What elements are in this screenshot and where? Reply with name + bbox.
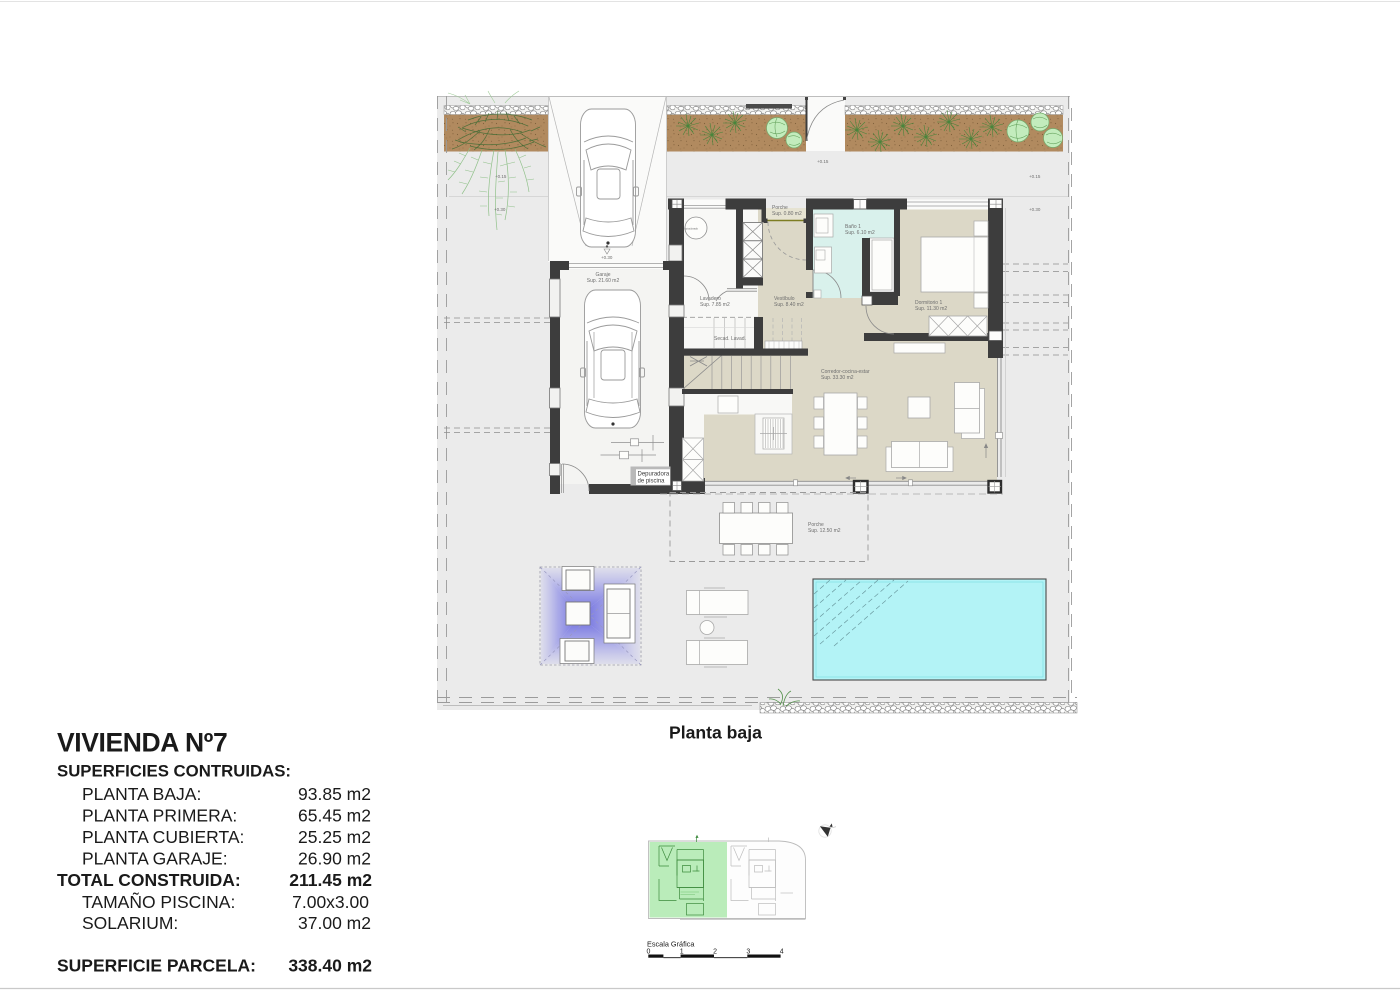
svg-text:Planta baja: Planta baja <box>669 723 762 743</box>
svg-text:Sup. 12.50 m2: Sup. 12.50 m2 <box>808 528 841 534</box>
svg-text:PLANTA BAJA:: PLANTA BAJA: <box>82 784 201 804</box>
svg-text:Sup. 6.10 m2: Sup. 6.10 m2 <box>845 230 875 236</box>
svg-text:93.85 m2: 93.85 m2 <box>298 784 371 804</box>
svg-text:Sup. 11.30 m2: Sup. 11.30 m2 <box>915 306 947 312</box>
svg-text:PLANTA GARAJE:: PLANTA GARAJE: <box>82 849 228 869</box>
svg-text:PLANTA PRIMERA:: PLANTA PRIMERA: <box>82 806 237 826</box>
svg-text:211.45 m2: 211.45 m2 <box>289 870 372 890</box>
svg-text:Sup. 33.30 m2: Sup. 33.30 m2 <box>821 375 854 381</box>
svg-text:PLANTA CUBIERTA:: PLANTA CUBIERTA: <box>82 827 244 847</box>
svg-text:Escala Gráfica: Escala Gráfica <box>647 940 695 949</box>
svg-text:338.40 m2: 338.40 m2 <box>288 956 372 976</box>
svg-text:+0.30: +0.30 <box>601 255 613 260</box>
svg-text:2: 2 <box>713 949 717 956</box>
svg-text:Sup. 8.40 m2: Sup. 8.40 m2 <box>774 302 804 308</box>
svg-text:Sup. 0.80 m2: Sup. 0.80 m2 <box>772 211 802 217</box>
svg-text:3: 3 <box>746 949 750 956</box>
svg-text:7.00x3.00: 7.00x3.00 <box>292 892 369 912</box>
svg-text:TAMAÑO PISCINA:: TAMAÑO PISCINA: <box>82 891 235 912</box>
svg-text:VIVIENDA Nº7: VIVIENDA Nº7 <box>57 728 227 758</box>
svg-text:SOLARIUM:: SOLARIUM: <box>82 913 178 933</box>
svg-text:0: 0 <box>647 949 651 956</box>
svg-text:Depuradora: Depuradora <box>638 472 670 478</box>
svg-text:TOTAL CONSTRUIDA:: TOTAL CONSTRUIDA: <box>57 870 241 890</box>
svg-text:SUPERFICIES CONTRUIDAS:: SUPERFICIES CONTRUIDAS: <box>57 762 291 781</box>
svg-text:37.00 m2: 37.00 m2 <box>298 913 371 933</box>
svg-text:25.25 m2: 25.25 m2 <box>298 827 371 847</box>
svg-text:Autoclorado: Autoclorado <box>684 227 698 231</box>
svg-text:65.45 m2: 65.45 m2 <box>298 806 371 826</box>
svg-text:+0.15: +0.15 <box>495 174 507 179</box>
svg-text:Sup. 21.60 m2: Sup. 21.60 m2 <box>587 278 620 284</box>
svg-text:Sup. 7.85 m2: Sup. 7.85 m2 <box>700 302 730 308</box>
svg-text:Secad. Lavad.: Secad. Lavad. <box>714 336 746 342</box>
svg-text:+0.15: +0.15 <box>817 159 829 164</box>
svg-text:+0.30: +0.30 <box>1029 207 1041 212</box>
svg-text:26.90 m2: 26.90 m2 <box>298 849 371 869</box>
svg-text:+0.30: +0.30 <box>494 207 506 212</box>
svg-text:SUPERFICIE PARCELA:: SUPERFICIE PARCELA: <box>57 956 256 976</box>
svg-text:de piscina: de piscina <box>638 479 666 485</box>
svg-text:4: 4 <box>780 949 784 956</box>
svg-text:+0.15: +0.15 <box>1029 174 1041 179</box>
svg-text:1: 1 <box>680 949 684 956</box>
